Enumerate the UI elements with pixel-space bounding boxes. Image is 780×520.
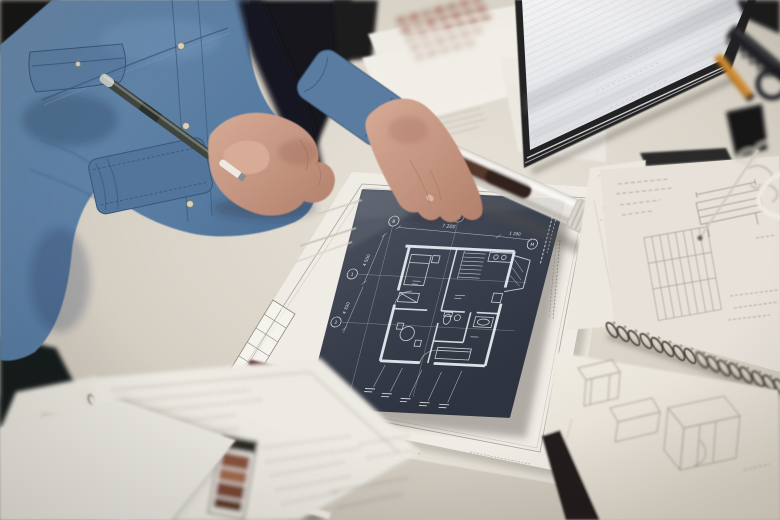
scene-canvas: 7 200 1 200 4 500 4 320 В Б 1 2 М: [0, 0, 780, 520]
photo-scene: 7 200 1 200 4 500 4 320 В Б 1 2 М: [0, 0, 780, 520]
vignette: [0, 0, 780, 520]
